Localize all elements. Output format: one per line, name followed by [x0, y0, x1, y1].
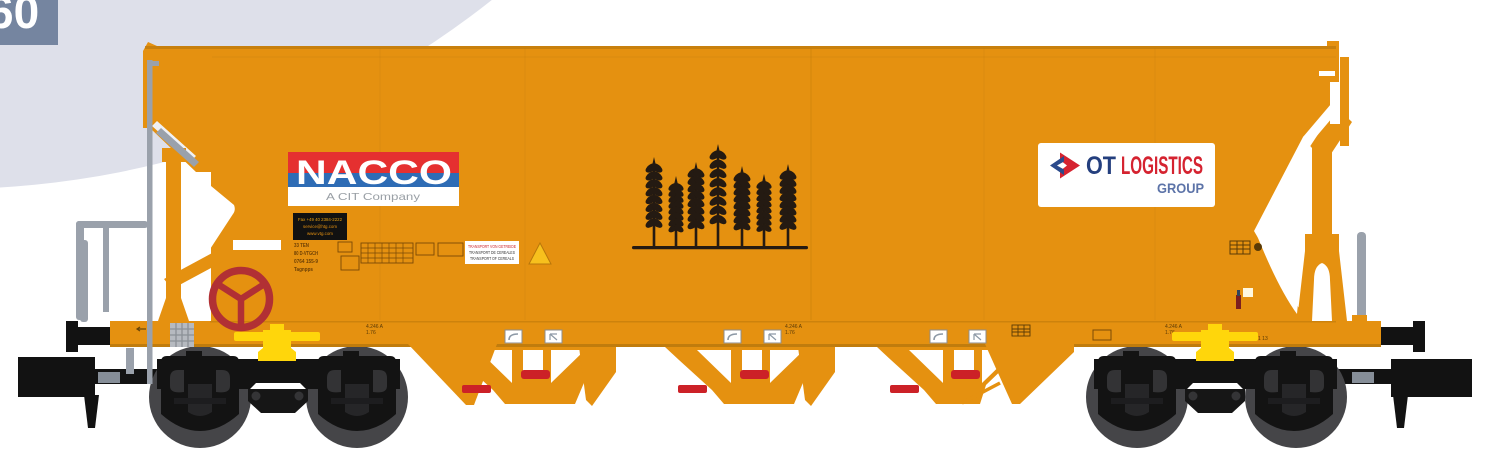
svg-text:TRANSPORT OF CEREALS: TRANSPORT OF CEREALS — [470, 256, 514, 261]
svg-text:33 TEN: 33 TEN — [294, 243, 309, 249]
svg-text:0764 155-9: 0764 155-9 — [294, 259, 318, 265]
svg-text:60: 60 — [0, 0, 39, 38]
svg-text:TRANSPORT DE CEREALES: TRANSPORT DE CEREALES — [469, 250, 515, 255]
svg-text:Tagnpps: Tagnpps — [294, 267, 313, 273]
svg-text:TRANSPORT VON GETREIDE: TRANSPORT VON GETREIDE — [468, 244, 516, 249]
svg-text:www.vtg.com: www.vtg.com — [307, 231, 333, 236]
svg-text:1 13: 1 13 — [1258, 336, 1268, 342]
svg-text:Fax +49 40 2384-2222: Fax +49 40 2384-2222 — [298, 217, 343, 222]
svg-text:service@htg.com: service@htg.com — [303, 224, 337, 229]
svg-text:80 D-VTGCH: 80 D-VTGCH — [294, 251, 318, 257]
svg-text:NACCO: NACCO — [296, 154, 452, 192]
svg-text:A CIT Company: A CIT Company — [326, 191, 421, 203]
svg-text:1.76: 1.76 — [366, 330, 376, 336]
svg-text:GROUP: GROUP — [1157, 180, 1204, 196]
svg-text:OT: OT — [1086, 152, 1116, 180]
svg-text:LOGISTICS: LOGISTICS — [1121, 152, 1203, 180]
svg-text:1.76: 1.76 — [785, 330, 795, 336]
